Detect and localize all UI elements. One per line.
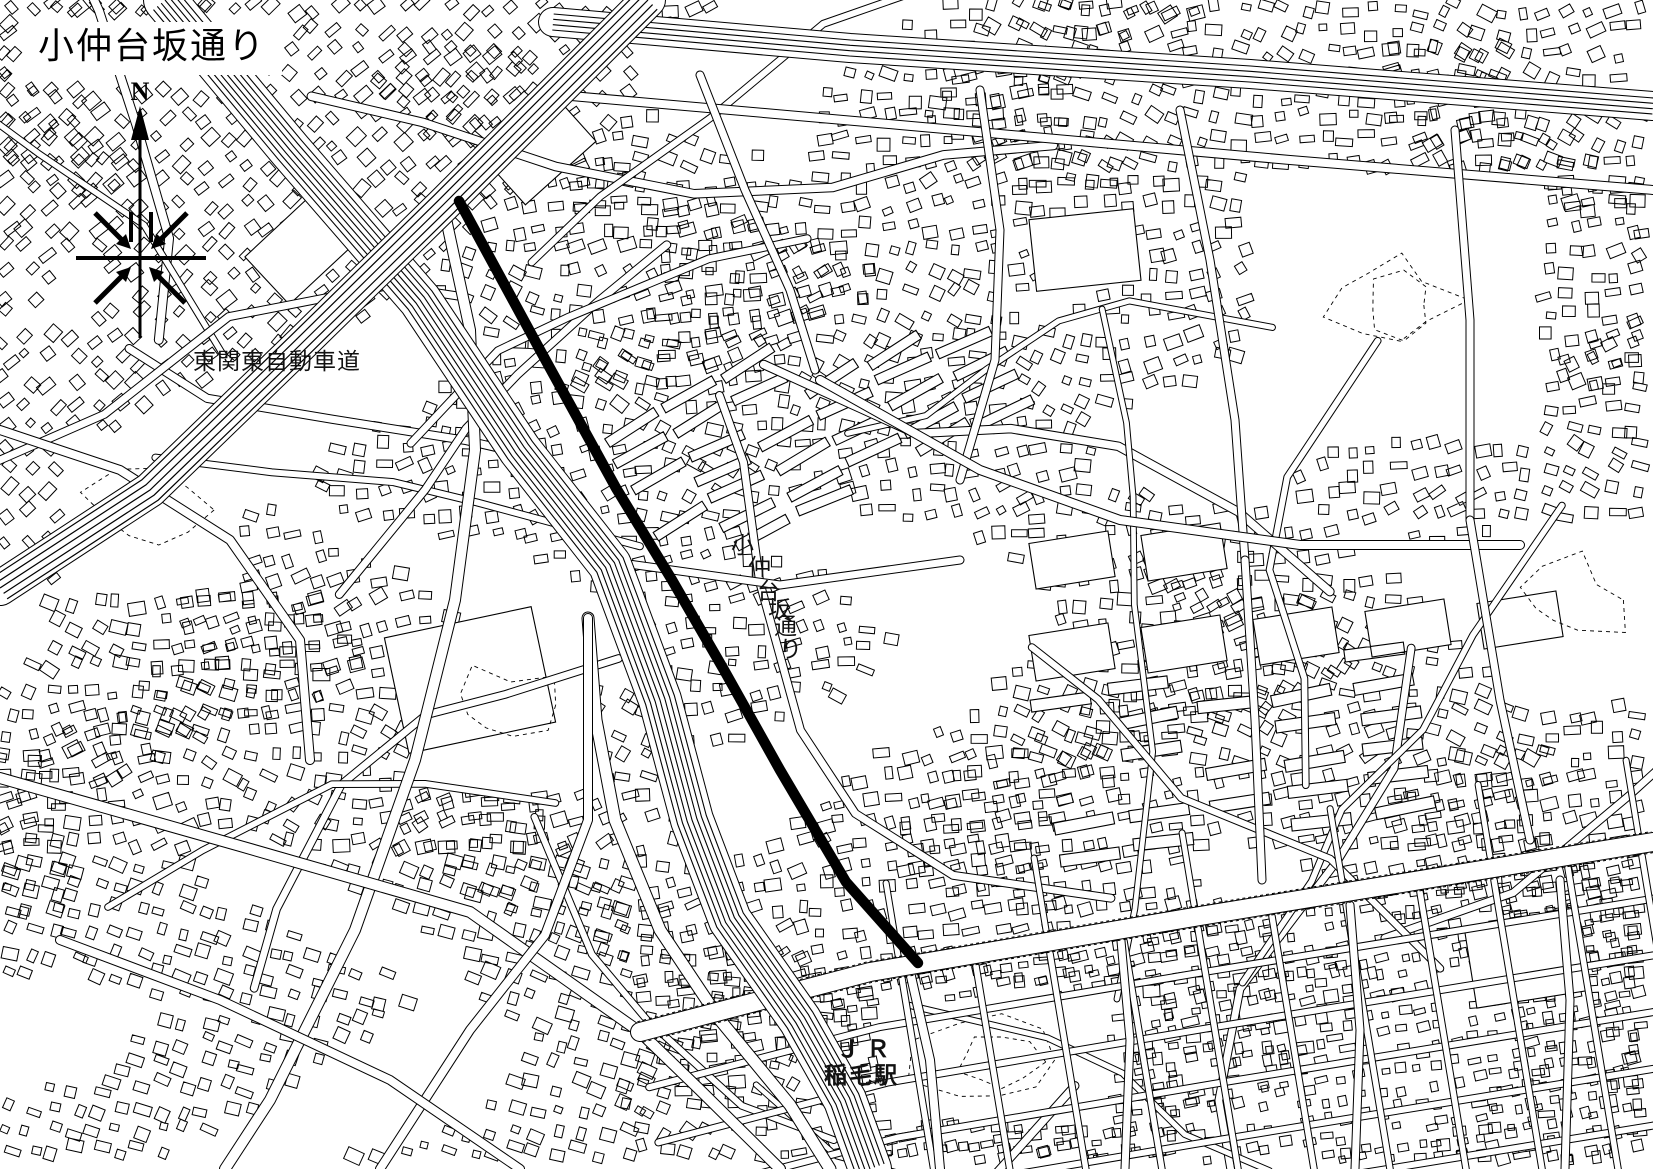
map-canvas: N — [0, 0, 1653, 1169]
north-label: N — [131, 77, 150, 106]
map-title-text: 小仲台坂通り — [38, 26, 266, 66]
map: N 小仲台坂通り 東関東自動車道 ＪＲ 稲毛駅 小仲台坂通り — [0, 0, 1653, 1169]
map-title: 小仲台坂通り — [28, 22, 282, 75]
